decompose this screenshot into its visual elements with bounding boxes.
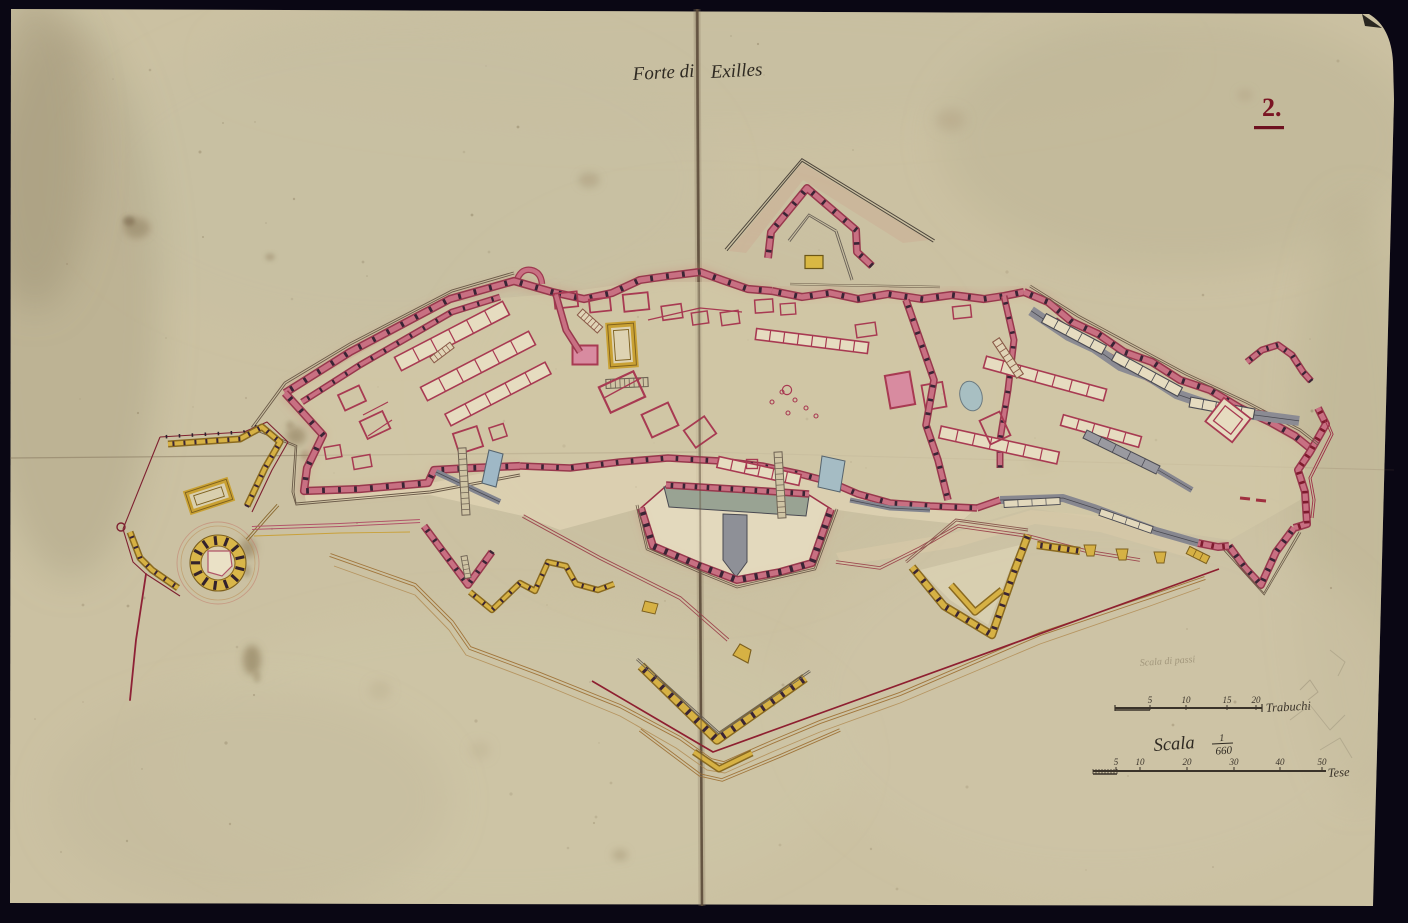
svg-text:1: 1 bbox=[1219, 733, 1225, 744]
svg-text:660: 660 bbox=[1215, 744, 1233, 757]
svg-text:Tese: Tese bbox=[1327, 765, 1350, 780]
svg-text:5: 5 bbox=[1148, 695, 1153, 705]
svg-text:20: 20 bbox=[1252, 695, 1262, 705]
svg-text:30: 30 bbox=[1229, 757, 1240, 767]
svg-text:Exilles: Exilles bbox=[709, 59, 763, 83]
svg-text:10: 10 bbox=[1182, 695, 1192, 705]
svg-text:Forte di: Forte di bbox=[631, 61, 695, 85]
svg-text:Scala: Scala bbox=[1153, 733, 1195, 756]
svg-text:40: 40 bbox=[1276, 757, 1286, 767]
svg-text:10: 10 bbox=[1136, 757, 1146, 767]
svg-text:2.: 2. bbox=[1262, 93, 1282, 122]
svg-text:20: 20 bbox=[1183, 757, 1193, 767]
svg-text:15: 15 bbox=[1223, 695, 1233, 705]
svg-text:50: 50 bbox=[1318, 757, 1328, 767]
svg-text:Trabuchi: Trabuchi bbox=[1265, 699, 1311, 715]
svg-text:5: 5 bbox=[1114, 757, 1119, 767]
